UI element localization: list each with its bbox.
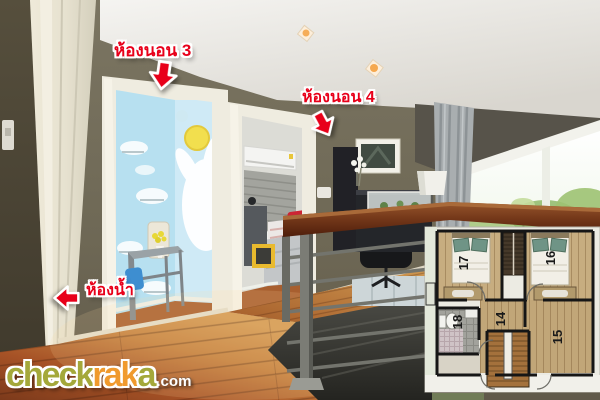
light-switch bbox=[2, 120, 14, 150]
annotation-bedroom-3: ห้องนอน 3 bbox=[114, 42, 191, 59]
watermark-tld: .com bbox=[156, 373, 191, 390]
plan-toilet bbox=[439, 315, 446, 328]
plan-stairs bbox=[487, 331, 529, 387]
watermark-check: check bbox=[6, 356, 92, 394]
stairwell-plant-blur bbox=[432, 393, 484, 400]
annotation-bathroom: ห้องน้ำ bbox=[86, 283, 134, 299]
room-number-18: 18 bbox=[450, 315, 465, 329]
watermark-rak: rak bbox=[92, 356, 137, 394]
room-number-16: 16 bbox=[543, 251, 558, 265]
room-number-17: 17 bbox=[456, 256, 471, 270]
arrow-left-icon bbox=[52, 284, 80, 312]
plan-ledge bbox=[426, 283, 435, 305]
railing-post bbox=[282, 236, 290, 322]
picture-frame bbox=[356, 139, 400, 173]
floor-plan-overlay: 17 16 18 14 15 bbox=[425, 227, 600, 392]
arrow-down-icon bbox=[146, 58, 180, 94]
light-switch bbox=[317, 187, 331, 198]
plan-wardrobe bbox=[502, 233, 525, 275]
annotation-bedroom-4: ห้องนอน 4 bbox=[302, 90, 375, 106]
room-number-15: 15 bbox=[550, 330, 565, 344]
plan-sink bbox=[465, 309, 478, 318]
checkraka-watermark: checkraka.com bbox=[6, 358, 191, 392]
photo-scene: 17 16 18 14 15 bbox=[0, 0, 600, 400]
showhome-hallway-photo: 17 16 18 14 15 ห้องนอน 3 ห้องนอน 4 ห้องน… bbox=[0, 0, 600, 400]
watermark-a: a bbox=[137, 356, 154, 394]
room-number-14: 14 bbox=[493, 311, 508, 326]
